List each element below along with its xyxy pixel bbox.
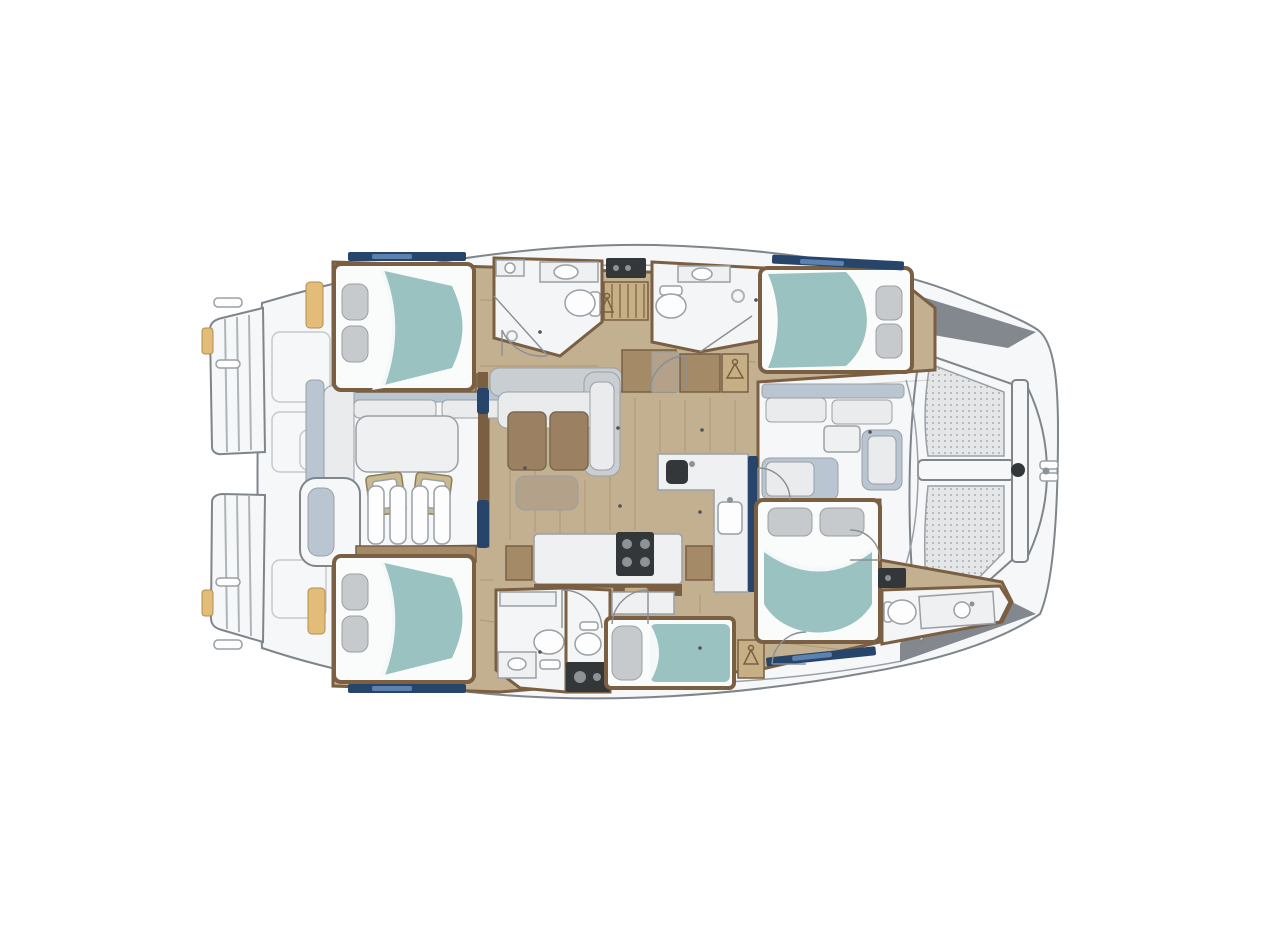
pillow <box>612 626 642 680</box>
saloon-cabinets <box>622 350 720 392</box>
pillow <box>342 574 368 610</box>
galley-island <box>506 532 712 596</box>
toilet <box>565 290 600 316</box>
helm-seat <box>300 478 360 566</box>
stbd-aft-cabin-bed <box>334 556 474 682</box>
port-boarding-handle <box>202 328 213 354</box>
saloon-door-glass-top <box>477 388 489 414</box>
port-fwd-cabin-bed <box>760 268 912 372</box>
saloon-hanging-locker <box>722 354 748 392</box>
stbd-fixture <box>878 568 906 588</box>
head-sink <box>554 265 578 279</box>
stbd-boarding-handle <box>202 590 213 616</box>
pillow <box>342 616 368 652</box>
toilet <box>656 286 686 318</box>
pillow <box>342 284 368 320</box>
port-fwd-head <box>652 262 764 352</box>
fwd-bench-back <box>762 384 904 398</box>
cockpit-side-bench <box>306 380 354 492</box>
galley-sink <box>666 460 688 484</box>
washer <box>566 662 610 692</box>
saloon-ottoman <box>516 476 578 510</box>
toilet <box>884 600 916 624</box>
second-sink <box>718 502 742 534</box>
floorplan-page <box>0 0 1261 945</box>
trampoline-crossbar <box>918 460 1014 480</box>
stbd-deck-pad <box>308 588 325 634</box>
companionway-stairs-port <box>601 258 648 320</box>
port-deck-pad <box>306 282 323 328</box>
fwd-cockpit-table <box>824 426 860 452</box>
stbd-hanging-locker <box>738 640 764 678</box>
head-sink <box>508 658 526 670</box>
catamaran-floorplan <box>0 0 1261 945</box>
crossbeam-latch <box>1011 463 1025 477</box>
pillow <box>876 324 902 358</box>
pillow <box>876 286 902 320</box>
pillow <box>342 326 368 362</box>
pillow <box>820 508 864 536</box>
stbd-swim-platform <box>202 494 265 649</box>
stbd-fwd-cabin-bed <box>756 500 880 642</box>
cockpit-table <box>356 416 458 472</box>
head-sink <box>954 602 970 618</box>
port-swim-platform <box>202 298 265 454</box>
pillow <box>768 508 812 536</box>
galley-stove <box>616 532 654 576</box>
saloon-door-glass-bottom <box>477 500 489 548</box>
head-sink <box>692 268 712 280</box>
port-aft-cabin-bed <box>334 264 476 392</box>
